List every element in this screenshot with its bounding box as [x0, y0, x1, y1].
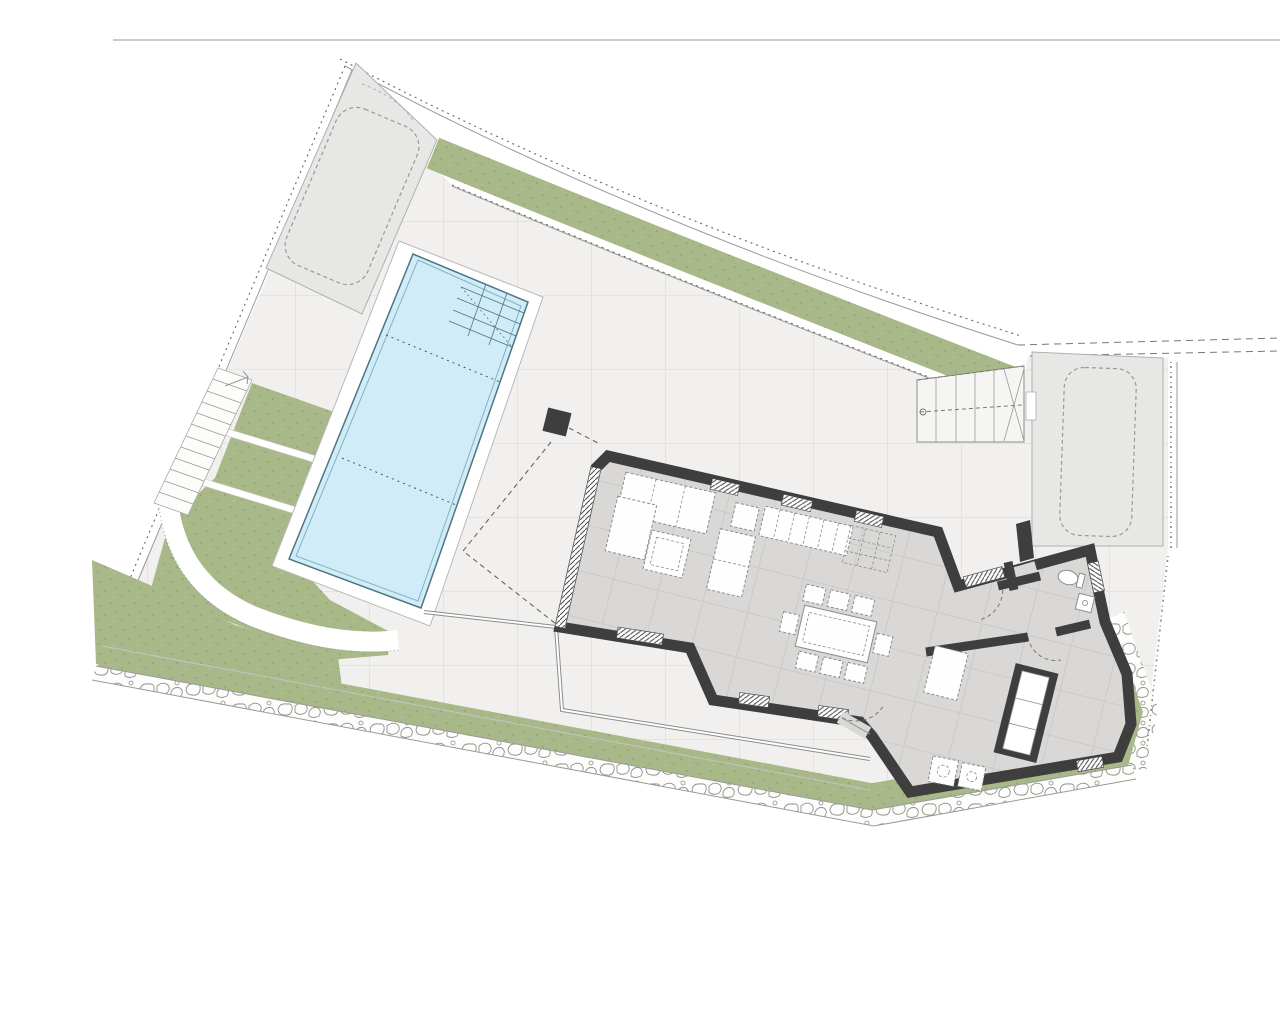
- site-plan-canvas: [0, 0, 1280, 1024]
- pad-notch: [1026, 392, 1036, 420]
- sink-icon: [1075, 593, 1094, 612]
- exterior-stairs: [917, 366, 1024, 442]
- boundary-dash-right-1: [1018, 338, 1280, 345]
- armchair: [643, 530, 691, 578]
- site-plan: [0, 0, 1280, 1024]
